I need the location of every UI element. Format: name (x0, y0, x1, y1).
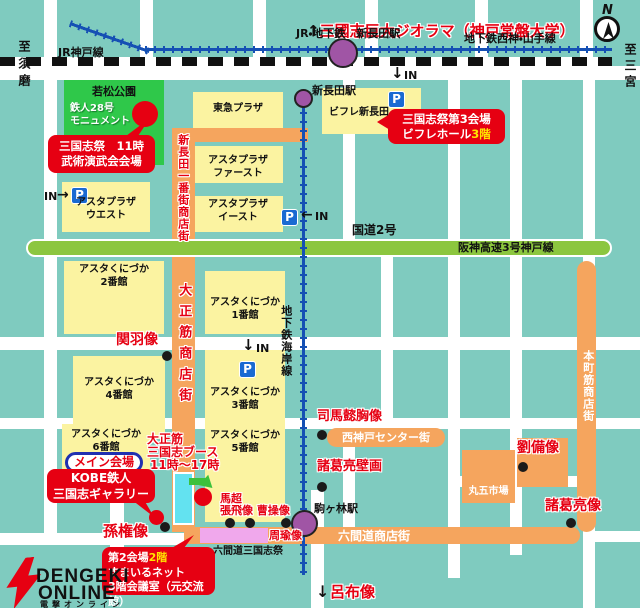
wakamatsu-park-label: 若松公園 (64, 85, 164, 99)
nishikobe-center-label: 西神戸センター街 (327, 431, 445, 445)
parking-icon: P (239, 361, 256, 378)
third-venue-line2: ビフレホール3階 (388, 127, 505, 142)
ichibangai-label: 新長田一番街商店街 (176, 134, 190, 242)
gallery-venue-callout: KOBE鉄人 三国志ギャラリー (47, 469, 155, 503)
bujutsu-line2: 武術演武会会場 (48, 154, 155, 169)
taisho-booth-line3: 11時〜17時 (150, 458, 219, 473)
shinnagata-station-label: 新長田駅 (312, 84, 356, 98)
kunizuka-3-label: アスタくにづか 3番館 (205, 387, 285, 412)
road (448, 80, 460, 578)
honmachisuji-label: 本町筋商店街 (581, 350, 595, 422)
kunizuka-2-label: アスタくにづか 2番館 (64, 264, 164, 289)
shuyu-statue-label: 周瑜像 (269, 529, 302, 543)
shokatsuryo-mural-dot (317, 482, 327, 492)
ryubi-statue-dot (518, 462, 528, 472)
compass-needle-icon (603, 22, 614, 39)
rokkendo-festival-label: 六間道三国志祭 (213, 546, 283, 559)
sonken-statue-dot (160, 522, 170, 532)
jr-subway-station-label: JR・地下鉄 新長田駅 (296, 27, 400, 41)
shokatsuryo-mural-label: 諸葛亮壁画 (317, 459, 382, 475)
road (585, 531, 640, 542)
subway-kaigan-line (300, 94, 307, 575)
in-arrow-down-icon: ↓ (242, 336, 255, 355)
taishosuji-label: 大正筋商店街 (175, 283, 191, 409)
road (0, 337, 640, 350)
shibai-statue-dot (317, 430, 327, 440)
shinnagata-jr-station-circle (328, 38, 358, 68)
road (0, 533, 185, 545)
in-label: IN (256, 342, 269, 356)
chohi-soso-statue-label: 張飛像 曹操像 (220, 504, 290, 518)
ryofu-arrow-icon: ↓ (316, 582, 329, 602)
booth-location-dot (194, 488, 212, 506)
basho-statue-dot (225, 518, 235, 528)
compass-icon (594, 16, 620, 42)
jr-kobe-line-label: JR神戸線 (58, 46, 104, 60)
gallery-line1: KOBE鉄人 (47, 471, 155, 487)
sangokushi-festival-map: P P P P ↓ IN IN → ← IN ↓ IN ↑三國志巨大ジオラマ（神… (0, 0, 640, 608)
seishin-yamate-line-label: 地下鉄西神・山手線 (464, 32, 556, 46)
to-sannomiya-label: 至三宮 (622, 43, 637, 91)
shuyu-statue-dot (281, 518, 291, 528)
to-suma-label: 至須磨 (16, 40, 31, 91)
in-arrow-down-icon: ↓ (391, 64, 404, 83)
bujutsu-venue-callout: 三国志祭 11時 武術演武会会場 (48, 135, 155, 173)
rokkendo-festival-area (200, 528, 268, 543)
kunizuka-6-label: アスタくにづか 6番館 (62, 429, 150, 454)
third-venue-floor: 3階 (471, 127, 491, 141)
ryofu-statue-label: 呂布像 (330, 583, 375, 602)
ryubi-statue-label: 劉備像 (517, 440, 559, 458)
shokatsuryo-statue-dot (566, 518, 576, 528)
second-venue-floor: 2階 (149, 551, 168, 564)
shokatsuryo-statue-label: 諸葛亮像 (545, 498, 601, 516)
shibai-statue-label: 司馬懿胸像 (317, 409, 382, 425)
tokyu-plaza-label: 東急プラザ (193, 103, 283, 116)
asta-west-label: アスタプラザ ウエスト (62, 197, 150, 222)
third-venue-line1: 三国志祭第3会場 (388, 112, 505, 127)
kunizuka-4-label: アスタくにづか 4番館 (73, 377, 165, 402)
ichibangai-connector-strip (178, 128, 308, 142)
parking-icon: P (388, 91, 405, 108)
second-venue-line1: 第2会場2階 (108, 551, 215, 566)
subway-seishin-yamate-line (145, 46, 612, 53)
route2-label: 国道2号 (352, 223, 396, 238)
asta-first-label: アスタプラザ ファースト (193, 155, 283, 180)
road (0, 66, 640, 80)
asta-east-label: アスタプラザ イースト (193, 199, 283, 224)
komagabayashi-station-label: 駒ヶ林駅 (314, 502, 358, 516)
road (44, 0, 57, 545)
parking-icon: P (281, 209, 298, 226)
in-label: IN (315, 210, 328, 224)
in-label: IN (404, 69, 417, 83)
dengeki-logo-line3: 電撃オンライン (40, 599, 124, 608)
shinnagata-subway-station-circle (294, 89, 313, 108)
kanu-statue-dot (162, 351, 172, 361)
kanu-statue-label: 関羽像 (116, 332, 158, 350)
hanshin-expressway-label: 阪神高速3号神戸線 (458, 241, 554, 255)
bifure-label: ビフレ新長田 (329, 107, 389, 120)
chohi-soso-statue-dot (245, 518, 255, 528)
in-arrow-left-icon: ← (301, 207, 313, 225)
sonken-statue-label: 孫権像 (103, 522, 148, 541)
gallery-line2: 三国志ギャラリー (47, 487, 155, 503)
third-venue-callout: 三国志祭第3会場 ビフレホール3階 (388, 109, 505, 144)
tetsujin-monument-label: 鉄人28号 モニュメント (70, 103, 130, 128)
kunizuka-1-label: アスタくにづか 1番館 (205, 297, 285, 322)
bujutsu-line1: 三国志祭 11時 (48, 139, 155, 154)
in-label: IN (44, 190, 57, 204)
rokkendo-label: 六間道商店街 (338, 529, 410, 544)
maruko-market-label: 丸五市場 (462, 486, 515, 499)
